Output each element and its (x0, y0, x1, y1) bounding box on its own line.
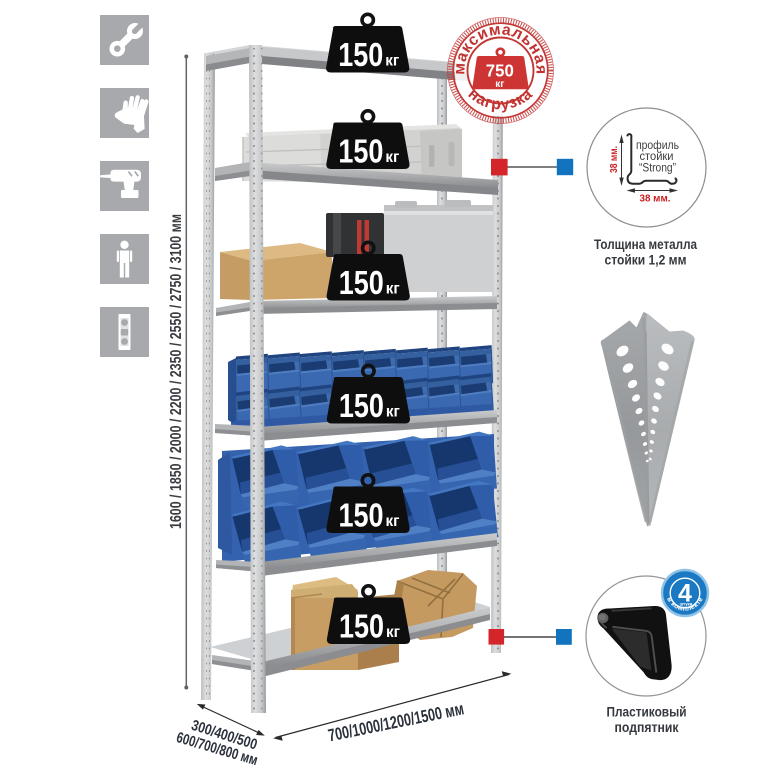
svg-text:38 мм.: 38 мм. (608, 146, 620, 173)
svg-text:“Strong”: “Strong” (639, 161, 676, 175)
svg-text:750: 750 (486, 61, 514, 81)
svg-text:1600 / 1850 / 2000 / 2200 / 23: 1600 / 1850 / 2000 / 2200 / 2350 / 2550 … (168, 214, 185, 529)
svg-text:кг: кг (495, 79, 504, 90)
svg-text:Пластиковый: Пластиковый (607, 705, 687, 720)
svg-text:стойки 1,2 мм: стойки 1,2 мм (605, 252, 687, 268)
svg-text:Толщина металла: Толщина металла (594, 236, 697, 252)
svg-text:подпятник: подпятник (615, 720, 679, 735)
svg-text:38 мм.: 38 мм. (640, 193, 671, 205)
